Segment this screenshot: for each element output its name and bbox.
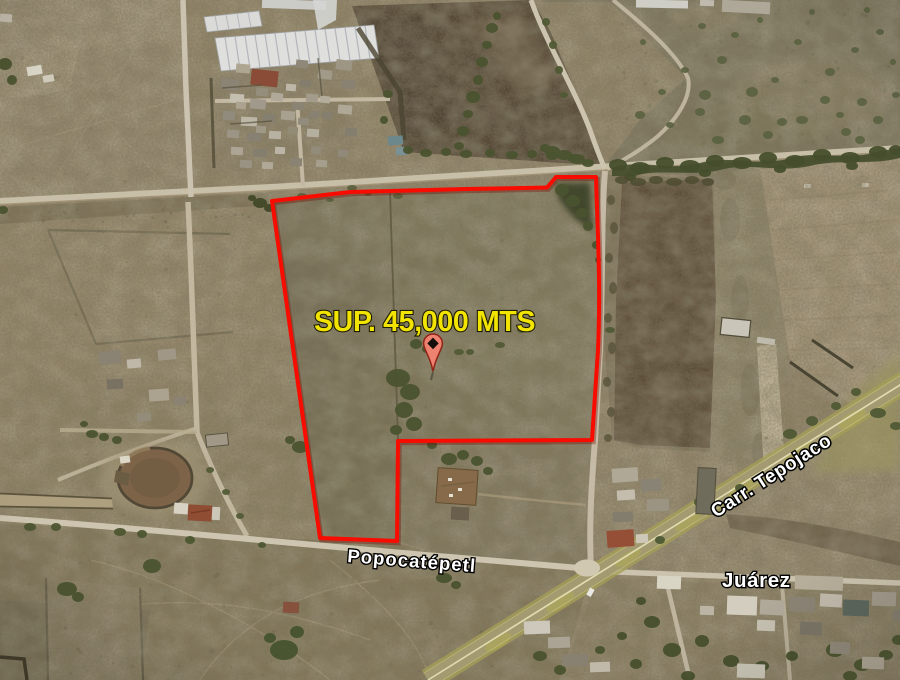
svg-text:Juárez: Juárez [722,569,790,592]
svg-text:SUP. 45,000 MTS: SUP. 45,000 MTS [314,306,536,338]
